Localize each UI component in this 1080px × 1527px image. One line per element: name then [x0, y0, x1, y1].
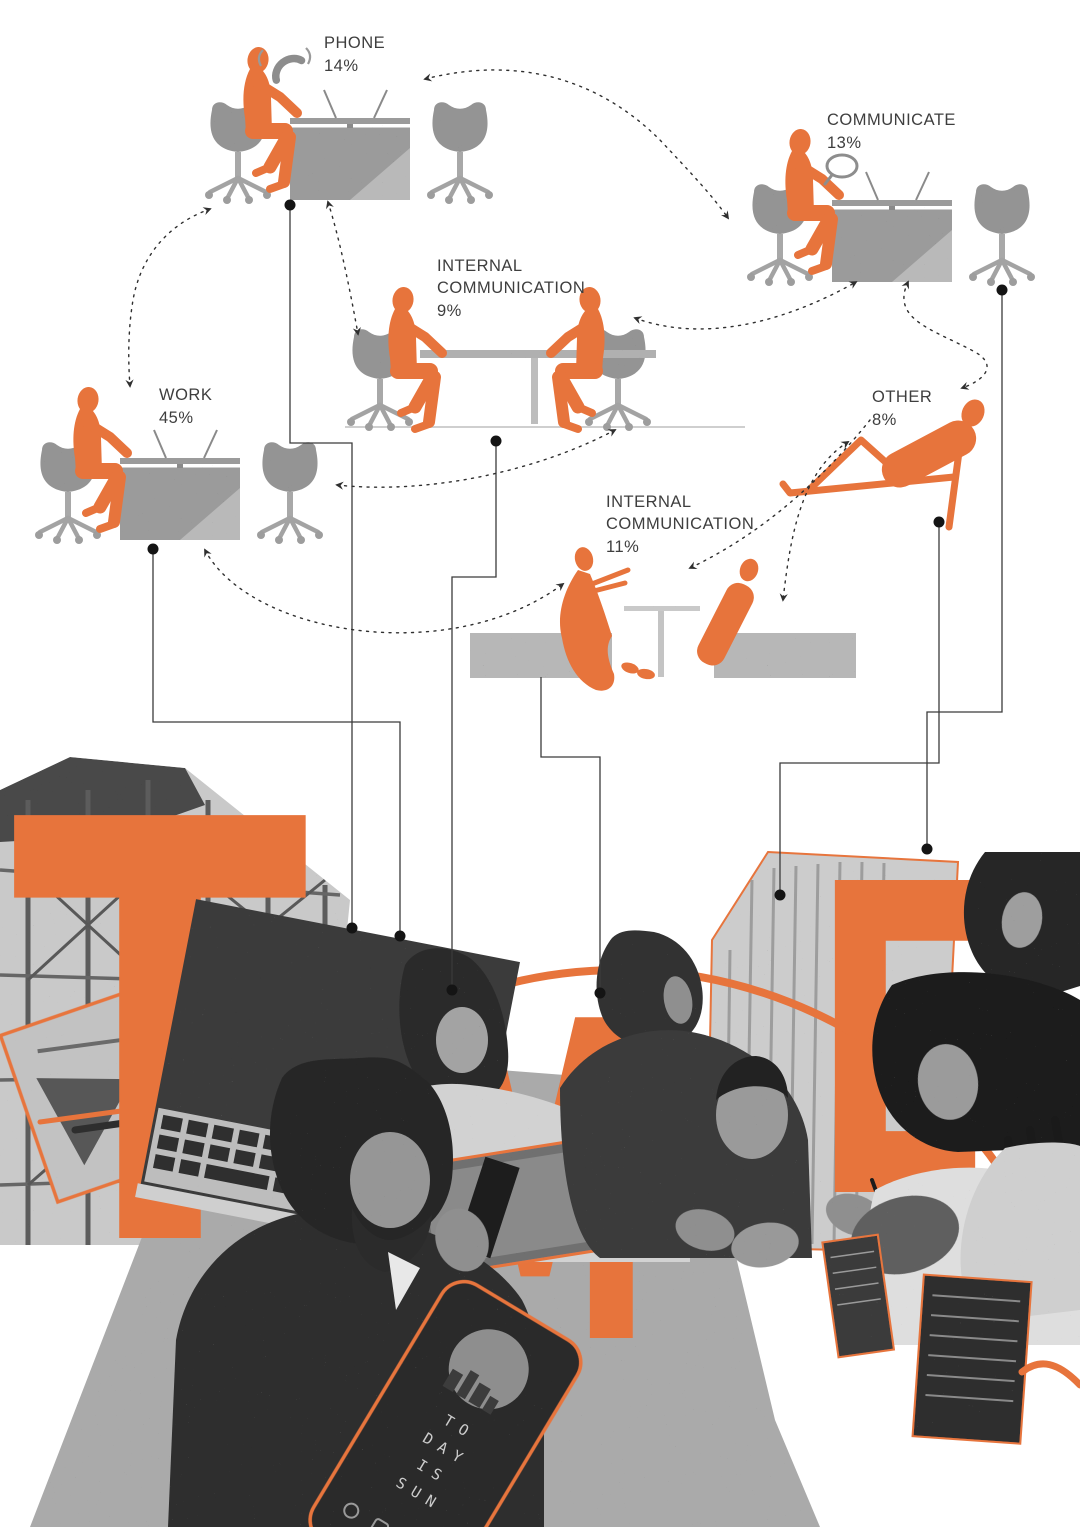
activity-name: COMMUNICATE [827, 110, 956, 132]
bench-right [714, 633, 856, 678]
activity-name: INTERNAL COMMUNICATION [437, 256, 599, 300]
label-phone: PHONE 14% [324, 33, 385, 78]
photo-documents [913, 1275, 1032, 1444]
label-other: OTHER 8% [872, 387, 932, 432]
poster-graphic: T I M E [0, 0, 1080, 1527]
activity-value: 14% [324, 56, 385, 78]
activity-value: 9% [437, 301, 599, 323]
label-communicate: COMMUNICATE 13% [827, 110, 956, 155]
activity-value: 13% [827, 133, 956, 155]
label-internal-communication-11: INTERNAL COMMUNICATION 11% [606, 492, 768, 558]
activity-value: 8% [872, 410, 932, 432]
label-internal-communication-9: INTERNAL COMMUNICATION 9% [437, 256, 599, 322]
collage: T I M E [0, 700, 1080, 1527]
activity-value: 45% [159, 408, 212, 430]
activity-name: OTHER [872, 387, 932, 409]
scene-lounge [470, 545, 856, 691]
orange-cable [1022, 1364, 1080, 1385]
speech-bubble-icon [825, 155, 857, 184]
activity-value: 11% [606, 537, 768, 559]
activity-name: WORK [159, 385, 212, 407]
activity-name: PHONE [324, 33, 385, 55]
label-work: WORK 45% [159, 385, 212, 430]
activity-name: INTERNAL COMMUNICATION [606, 492, 768, 536]
infographic-poster: T I M E [0, 0, 1080, 1527]
